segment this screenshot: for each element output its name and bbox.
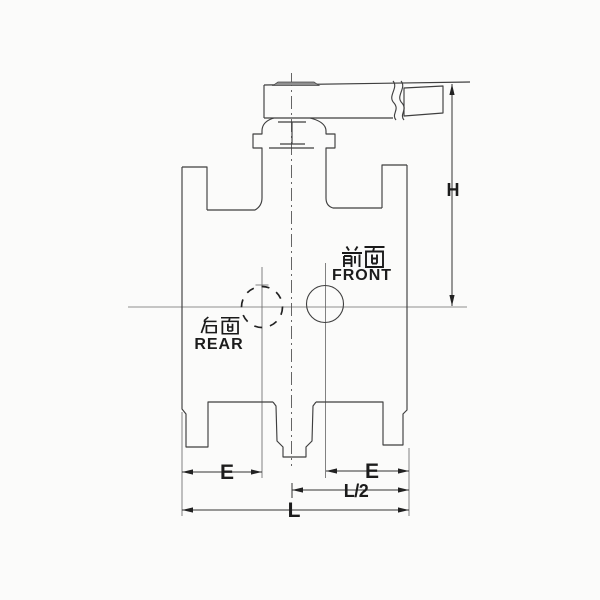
dimensions — [182, 84, 455, 516]
dim-e-left-label: E — [220, 461, 234, 484]
dim-l2-arrow-r — [398, 487, 409, 492]
bonnet-left-profile — [207, 118, 274, 210]
dim-e-left-arrow-l — [182, 469, 193, 474]
handle — [264, 81, 470, 120]
stem-section — [278, 122, 306, 144]
dim-l2-label: L/2 — [344, 481, 369, 501]
dim-e-left-arrow-r — [251, 469, 262, 474]
dim-h-arrow-down — [449, 295, 454, 306]
dim-h-arrow-up — [449, 84, 454, 95]
dim-l-label: L — [288, 499, 301, 522]
ports — [242, 286, 344, 328]
front-port-circle — [307, 286, 344, 323]
rear-label-cn — [201, 317, 239, 334]
drain-boss — [273, 402, 316, 457]
dim-h-label: H — [447, 180, 460, 200]
front-label-cn — [342, 247, 385, 268]
rear-label-en: REAR — [194, 336, 243, 353]
handle-end-cap — [404, 86, 443, 116]
handle-break-line-1 — [392, 81, 396, 120]
front-label-en: FRONT — [332, 267, 392, 284]
bonnet — [207, 118, 382, 210]
centerlines — [128, 73, 467, 478]
right-flange-top — [382, 165, 407, 208]
dim-e-right-arrow-l — [326, 468, 337, 473]
dim-e-right-arrow-r — [398, 468, 409, 473]
valve-drawing: H E E L/2 L FRONT REAR — [0, 0, 600, 600]
dim-e-right-label: E — [365, 460, 379, 483]
blueprint-canvas: H E E L/2 L FRONT REAR — [0, 0, 600, 600]
dim-l-arrow-r — [398, 507, 409, 512]
left-flange-top — [182, 167, 207, 210]
bonnet-right-profile — [310, 118, 382, 208]
dim-l-arrow-l — [182, 507, 193, 512]
handle-grip-pad — [273, 82, 319, 86]
dim-l2-arrow-l — [292, 487, 303, 492]
valve-body — [182, 165, 407, 457]
